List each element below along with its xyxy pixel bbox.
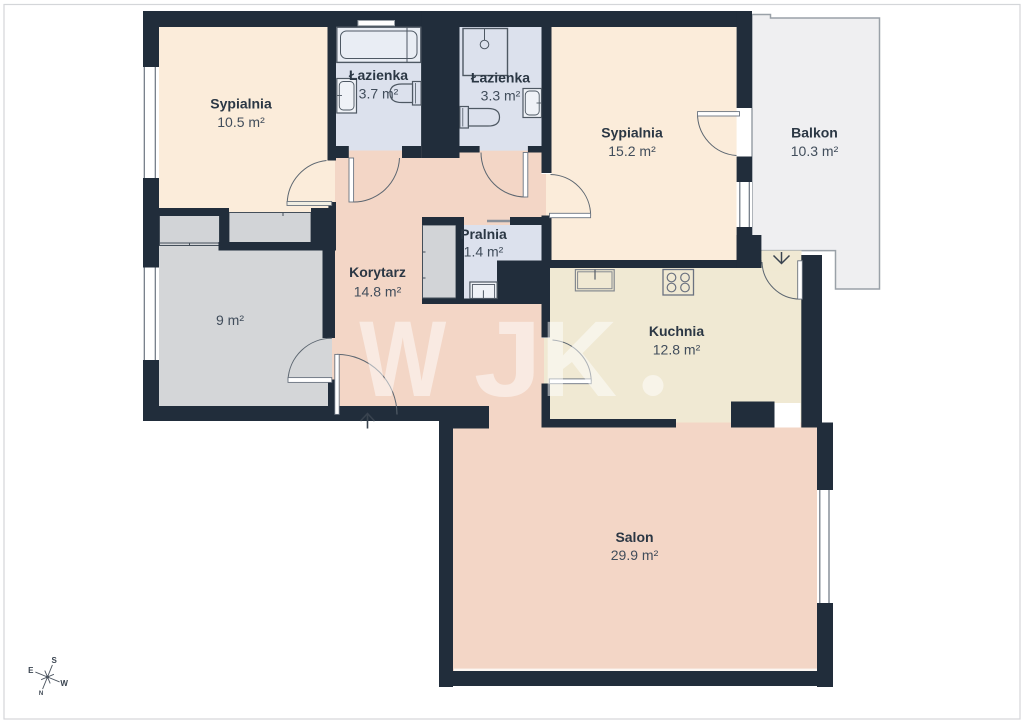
svg-text:N: N xyxy=(39,691,43,697)
svg-text:14.8 m²: 14.8 m² xyxy=(354,284,402,300)
svg-text:Salon: Salon xyxy=(615,529,653,545)
svg-text:Sypialnia: Sypialnia xyxy=(210,96,272,112)
svg-text:15.2 m²: 15.2 m² xyxy=(608,143,656,159)
svg-text:29.9 m²: 29.9 m² xyxy=(611,547,659,563)
svg-text:9 m²: 9 m² xyxy=(216,312,244,328)
svg-text:S: S xyxy=(52,656,58,665)
svg-text:Łazienka: Łazienka xyxy=(349,67,408,83)
svg-text:12.8 m²: 12.8 m² xyxy=(653,342,701,358)
svg-text:1.4 m²: 1.4 m² xyxy=(464,244,504,260)
svg-text:Kuchnia: Kuchnia xyxy=(649,323,704,339)
svg-text:J: J xyxy=(474,299,542,420)
svg-text:Łazienka: Łazienka xyxy=(471,70,530,86)
svg-text:Pralnia: Pralnia xyxy=(460,226,507,242)
svg-text:E: E xyxy=(28,666,34,675)
svg-text:3.3 m²: 3.3 m² xyxy=(481,88,521,104)
svg-text:10.5 m²: 10.5 m² xyxy=(217,114,265,130)
svg-text:Balkon: Balkon xyxy=(791,125,838,141)
svg-text:Korytarz: Korytarz xyxy=(349,264,406,280)
svg-text:K: K xyxy=(541,298,617,419)
svg-text:W: W xyxy=(359,299,446,420)
svg-text:10.3 m²: 10.3 m² xyxy=(791,143,839,159)
svg-text:W: W xyxy=(60,679,68,688)
svg-text:3.7 m²: 3.7 m² xyxy=(359,86,399,102)
svg-text:Sypialnia: Sypialnia xyxy=(601,125,663,141)
